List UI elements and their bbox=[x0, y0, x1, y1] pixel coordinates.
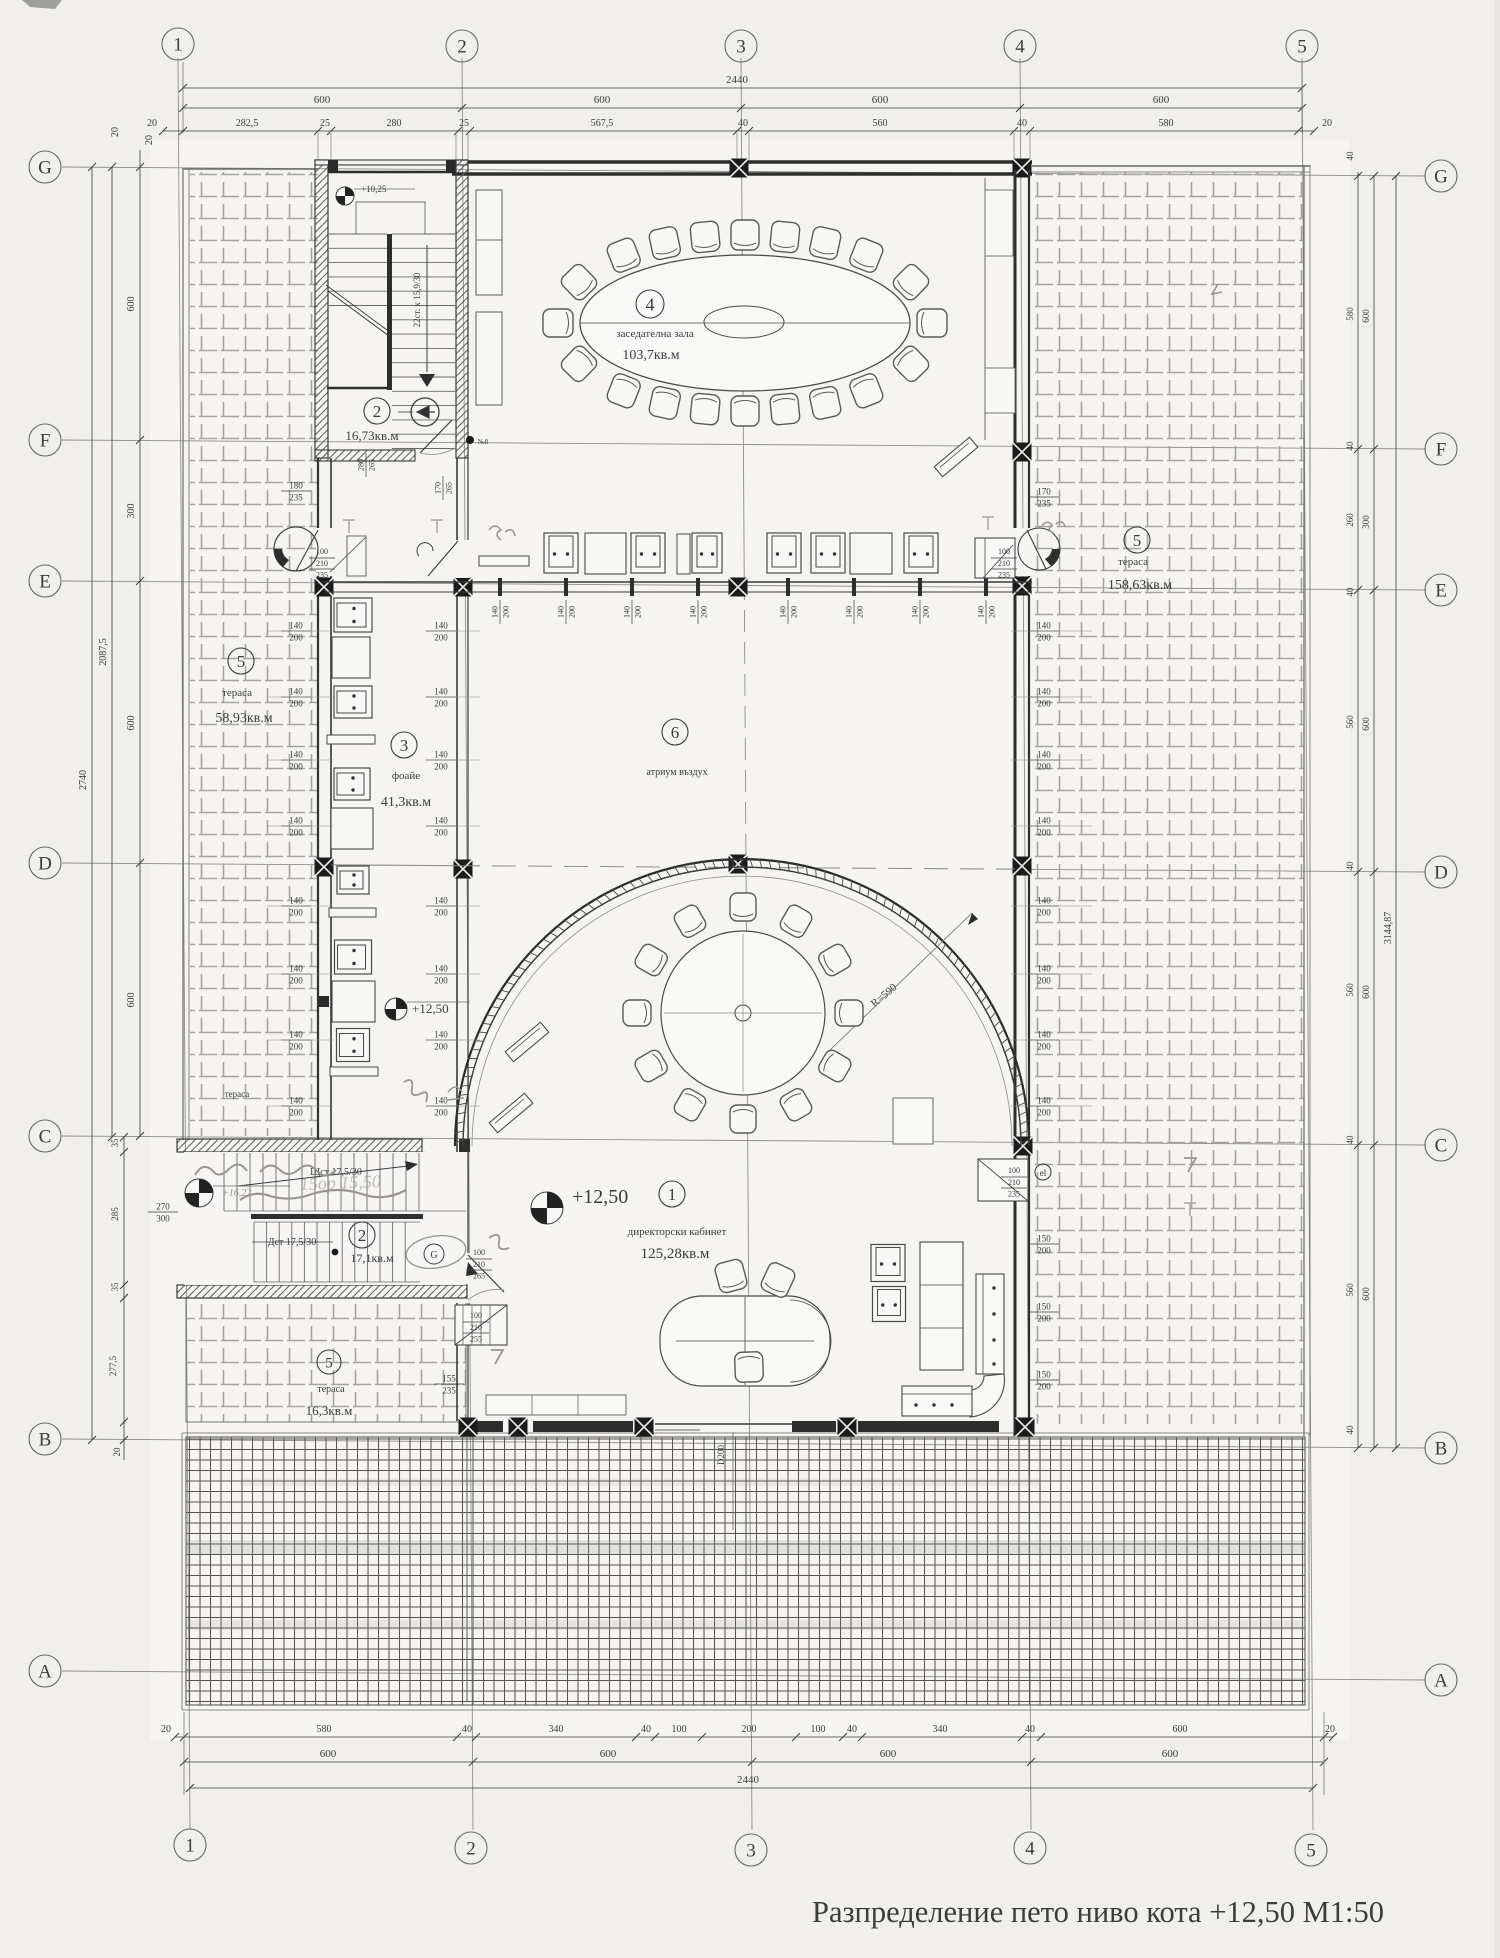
svg-text:D: D bbox=[1434, 863, 1448, 884]
svg-text:el: el bbox=[1040, 1168, 1047, 1178]
svg-text:200: 200 bbox=[434, 1042, 448, 1052]
svg-text:200: 200 bbox=[1037, 1382, 1051, 1392]
svg-text:600: 600 bbox=[872, 94, 889, 106]
svg-text:150: 150 bbox=[1037, 1302, 1051, 1312]
svg-text:140: 140 bbox=[1037, 816, 1051, 826]
svg-text:200: 200 bbox=[790, 606, 799, 618]
svg-text:280: 280 bbox=[387, 118, 402, 129]
svg-text:140: 140 bbox=[1037, 896, 1051, 906]
svg-text:200: 200 bbox=[289, 976, 303, 986]
svg-text:200: 200 bbox=[289, 633, 303, 643]
svg-text:158,63кв.м: 158,63кв.м bbox=[1108, 578, 1172, 593]
svg-text:560: 560 bbox=[1345, 715, 1355, 729]
svg-text:5: 5 bbox=[325, 1355, 333, 1371]
svg-text:140: 140 bbox=[434, 621, 448, 631]
svg-text:35: 35 bbox=[110, 1282, 120, 1292]
svg-text:100: 100 bbox=[470, 1311, 482, 1320]
svg-text:580: 580 bbox=[317, 1724, 332, 1735]
svg-text:1: 1 bbox=[185, 1836, 195, 1857]
svg-text:200: 200 bbox=[434, 633, 448, 643]
svg-text:40: 40 bbox=[1345, 587, 1355, 597]
svg-text:20: 20 bbox=[112, 1447, 122, 1457]
svg-text:40: 40 bbox=[847, 1724, 857, 1735]
svg-text:№8: №8 bbox=[478, 438, 489, 446]
svg-text:600: 600 bbox=[880, 1748, 897, 1760]
svg-text:140: 140 bbox=[289, 896, 303, 906]
svg-text:300: 300 bbox=[126, 504, 137, 519]
svg-text:E: E bbox=[1435, 581, 1447, 602]
svg-text:600: 600 bbox=[1173, 1724, 1188, 1735]
svg-text:282,5: 282,5 bbox=[236, 118, 259, 129]
svg-text:200: 200 bbox=[434, 908, 448, 918]
svg-text:G: G bbox=[38, 158, 52, 179]
svg-text:140: 140 bbox=[623, 606, 632, 618]
svg-text:140: 140 bbox=[434, 964, 448, 974]
svg-text:200: 200 bbox=[434, 699, 448, 709]
svg-text:5: 5 bbox=[1306, 1841, 1316, 1862]
svg-text:D200: D200 bbox=[716, 1445, 726, 1465]
svg-text:фоайе: фоайе bbox=[392, 770, 420, 782]
svg-text:140: 140 bbox=[434, 1030, 448, 1040]
svg-text:16,3кв.м: 16,3кв.м bbox=[306, 1403, 353, 1418]
svg-text:210: 210 bbox=[473, 1260, 485, 1269]
svg-text:235: 235 bbox=[998, 571, 1010, 580]
svg-text:D: D bbox=[38, 854, 52, 875]
svg-text:140: 140 bbox=[911, 606, 920, 618]
svg-text:2: 2 bbox=[457, 37, 467, 58]
svg-text:A: A bbox=[1434, 1671, 1448, 1692]
svg-text:40: 40 bbox=[1025, 1724, 1035, 1735]
svg-text:140: 140 bbox=[689, 606, 698, 618]
svg-text:200: 200 bbox=[1037, 1314, 1051, 1324]
svg-text:F: F bbox=[1436, 440, 1447, 461]
svg-text:+12,50: +12,50 bbox=[412, 1001, 449, 1016]
svg-text:40: 40 bbox=[1017, 118, 1027, 129]
svg-text:35: 35 bbox=[110, 1138, 120, 1148]
svg-text:277,5: 277,5 bbox=[108, 1355, 118, 1376]
svg-text:200: 200 bbox=[634, 606, 643, 618]
svg-text:5: 5 bbox=[237, 652, 246, 671]
svg-text:600: 600 bbox=[600, 1748, 617, 1760]
svg-text:16,73кв.м: 16,73кв.м bbox=[345, 428, 398, 443]
svg-text:600: 600 bbox=[594, 94, 611, 106]
svg-text:100: 100 bbox=[672, 1724, 687, 1735]
svg-text:600: 600 bbox=[1361, 309, 1371, 323]
svg-text:17,1кв.м: 17,1кв.м bbox=[350, 1251, 393, 1265]
svg-text:150: 150 bbox=[1037, 1234, 1051, 1244]
svg-text:40: 40 bbox=[1345, 441, 1355, 451]
svg-text:600: 600 bbox=[126, 993, 137, 1008]
svg-text:200: 200 bbox=[289, 908, 303, 918]
svg-text:600: 600 bbox=[1361, 985, 1371, 999]
svg-text:2087,5: 2087,5 bbox=[98, 638, 109, 666]
svg-text:140: 140 bbox=[1037, 750, 1051, 760]
svg-text:200: 200 bbox=[1037, 1246, 1051, 1256]
svg-text:200: 200 bbox=[1037, 762, 1051, 772]
svg-text:200: 200 bbox=[289, 828, 303, 838]
svg-text:5: 5 bbox=[1133, 531, 1142, 550]
svg-text:255: 255 bbox=[470, 1335, 482, 1344]
svg-text:260: 260 bbox=[1345, 513, 1355, 527]
svg-text:140: 140 bbox=[779, 606, 788, 618]
svg-text:100: 100 bbox=[316, 547, 328, 556]
svg-text:200: 200 bbox=[1037, 633, 1051, 643]
svg-text:200: 200 bbox=[856, 606, 865, 618]
svg-text:210: 210 bbox=[1008, 1178, 1020, 1187]
svg-text:140: 140 bbox=[1037, 687, 1051, 697]
svg-text:20: 20 bbox=[1325, 1724, 1335, 1735]
svg-text:E: E bbox=[39, 572, 51, 593]
svg-text:265: 265 bbox=[445, 482, 454, 494]
svg-text:C: C bbox=[1435, 1136, 1448, 1157]
svg-text:567,5: 567,5 bbox=[591, 118, 614, 129]
svg-text:140: 140 bbox=[289, 964, 303, 974]
svg-text:285: 285 bbox=[110, 1207, 120, 1221]
svg-text:580: 580 bbox=[1345, 307, 1355, 321]
svg-text:170: 170 bbox=[1037, 487, 1051, 497]
svg-text:2: 2 bbox=[373, 402, 382, 421]
svg-text:200: 200 bbox=[289, 1108, 303, 1118]
svg-text:тераса: тераса bbox=[222, 687, 252, 699]
svg-text:200: 200 bbox=[1037, 976, 1051, 986]
svg-text:3: 3 bbox=[746, 1841, 756, 1862]
svg-text:тераса: тераса bbox=[317, 1384, 345, 1395]
svg-text:3144,87: 3144,87 bbox=[1383, 912, 1394, 945]
svg-text:58,93кв.м: 58,93кв.м bbox=[215, 711, 272, 726]
svg-text:580: 580 bbox=[1159, 118, 1174, 129]
svg-text:40: 40 bbox=[738, 118, 748, 129]
svg-text:235: 235 bbox=[1008, 1190, 1020, 1199]
svg-text:235: 235 bbox=[1037, 499, 1051, 509]
svg-text:200: 200 bbox=[289, 1042, 303, 1052]
svg-text:заседателна зала: заседателна зала bbox=[616, 328, 694, 340]
svg-text:25: 25 bbox=[459, 118, 469, 129]
svg-text:140: 140 bbox=[434, 896, 448, 906]
svg-text:140: 140 bbox=[557, 606, 566, 618]
svg-text:210: 210 bbox=[316, 559, 328, 568]
svg-text:40: 40 bbox=[1345, 151, 1355, 161]
svg-text:140: 140 bbox=[1037, 1030, 1051, 1040]
svg-text:155: 155 bbox=[442, 1374, 456, 1384]
svg-text:40: 40 bbox=[641, 1724, 651, 1735]
svg-text:5: 5 bbox=[1297, 37, 1307, 58]
svg-text:140: 140 bbox=[289, 621, 303, 631]
svg-text:140: 140 bbox=[434, 1096, 448, 1106]
svg-text:600: 600 bbox=[126, 716, 137, 731]
svg-text:210: 210 bbox=[470, 1323, 482, 1332]
svg-text:140: 140 bbox=[434, 750, 448, 760]
svg-text:300: 300 bbox=[1361, 515, 1371, 529]
svg-text:210: 210 bbox=[998, 559, 1010, 568]
svg-text:340: 340 bbox=[549, 1724, 564, 1735]
svg-text:600: 600 bbox=[314, 94, 331, 106]
svg-text:25: 25 bbox=[320, 118, 330, 129]
svg-text:3: 3 bbox=[400, 736, 409, 755]
svg-text:265: 265 bbox=[368, 459, 377, 471]
svg-text:140: 140 bbox=[434, 816, 448, 826]
svg-text:270: 270 bbox=[156, 1202, 170, 1212]
svg-text:тераса: тераса bbox=[1118, 556, 1148, 568]
svg-text:200: 200 bbox=[700, 606, 709, 618]
svg-text:15ор 15,50: 15ор 15,50 bbox=[299, 1171, 381, 1194]
svg-text:20: 20 bbox=[110, 127, 121, 137]
svg-text:140: 140 bbox=[1037, 1096, 1051, 1106]
svg-text:140: 140 bbox=[977, 606, 986, 618]
svg-text:+12,50: +12,50 bbox=[572, 1186, 628, 1208]
svg-text:+16,22: +16,22 bbox=[222, 1188, 251, 1199]
svg-text:125,28кв.м: 125,28кв.м bbox=[641, 1246, 710, 1262]
svg-text:180: 180 bbox=[289, 481, 303, 491]
svg-text:300: 300 bbox=[156, 1214, 170, 1224]
svg-text:4: 4 bbox=[646, 294, 655, 314]
svg-text:41,3кв.м: 41,3кв.м bbox=[381, 795, 431, 810]
svg-text:235: 235 bbox=[316, 571, 328, 580]
svg-text:103,7кв.м: 103,7кв.м bbox=[622, 348, 679, 363]
svg-text:тераса: тераса bbox=[225, 1089, 250, 1099]
svg-text:600: 600 bbox=[320, 1748, 337, 1760]
svg-text:20: 20 bbox=[144, 135, 155, 145]
svg-text:200: 200 bbox=[434, 976, 448, 986]
svg-text:140: 140 bbox=[289, 1096, 303, 1106]
svg-text:200: 200 bbox=[289, 699, 303, 709]
svg-text:40: 40 bbox=[462, 1724, 472, 1735]
svg-text:200: 200 bbox=[1037, 1042, 1051, 1052]
svg-text:A: A bbox=[38, 1662, 52, 1683]
svg-text:600: 600 bbox=[1361, 1287, 1371, 1301]
svg-text:560: 560 bbox=[1345, 983, 1355, 997]
svg-text:140: 140 bbox=[1037, 621, 1051, 631]
svg-text:600: 600 bbox=[1153, 94, 1170, 106]
svg-text:200: 200 bbox=[1037, 699, 1051, 709]
svg-text:C: C bbox=[39, 1127, 52, 1148]
svg-text:20: 20 bbox=[147, 118, 157, 129]
svg-text:200: 200 bbox=[434, 762, 448, 772]
svg-text:4: 4 bbox=[1025, 1839, 1035, 1860]
svg-text:200: 200 bbox=[1037, 828, 1051, 838]
svg-text:600: 600 bbox=[1162, 1748, 1179, 1760]
svg-text:200: 200 bbox=[434, 1108, 448, 1118]
svg-text:200: 200 bbox=[742, 1724, 757, 1735]
svg-text:200: 200 bbox=[289, 762, 303, 772]
svg-text:200: 200 bbox=[988, 606, 997, 618]
svg-text:атриум въздух: атриум въздух bbox=[646, 767, 707, 778]
svg-text:F: F bbox=[40, 431, 51, 452]
svg-text:2: 2 bbox=[358, 1226, 367, 1245]
svg-text:200: 200 bbox=[502, 606, 511, 618]
svg-text:40: 40 bbox=[1345, 1425, 1355, 1435]
svg-text:6: 6 bbox=[671, 723, 680, 742]
svg-text:Разпределение пето ниво кота +: Разпределение пето ниво кота +12,50 М1:5… bbox=[812, 1895, 1384, 1929]
svg-text:280: 280 bbox=[357, 459, 366, 471]
svg-text:200: 200 bbox=[434, 828, 448, 838]
svg-text:235: 235 bbox=[442, 1386, 456, 1396]
svg-text:100: 100 bbox=[1008, 1166, 1020, 1175]
svg-text:140: 140 bbox=[289, 1030, 303, 1040]
svg-text:1: 1 bbox=[668, 1185, 677, 1204]
svg-text:200: 200 bbox=[1037, 908, 1051, 918]
svg-text:B: B bbox=[1435, 1439, 1448, 1460]
svg-text:100: 100 bbox=[473, 1248, 485, 1257]
svg-text:100: 100 bbox=[998, 547, 1010, 556]
svg-text:3: 3 bbox=[736, 37, 746, 58]
svg-text:2440: 2440 bbox=[737, 1774, 760, 1786]
svg-text:100: 100 bbox=[811, 1724, 826, 1735]
svg-text:170: 170 bbox=[434, 482, 443, 494]
svg-text:20: 20 bbox=[161, 1724, 171, 1735]
svg-text:235: 235 bbox=[289, 493, 303, 503]
svg-text:40: 40 bbox=[1345, 1135, 1355, 1145]
svg-text:200: 200 bbox=[1037, 1108, 1051, 1118]
svg-text:600: 600 bbox=[1361, 717, 1371, 731]
svg-text:G: G bbox=[1434, 167, 1448, 188]
svg-text:140: 140 bbox=[845, 606, 854, 618]
svg-text:200: 200 bbox=[568, 606, 577, 618]
svg-text:140: 140 bbox=[289, 816, 303, 826]
svg-text:2740: 2740 bbox=[78, 770, 89, 790]
svg-text:140: 140 bbox=[1037, 964, 1051, 974]
svg-text:G: G bbox=[430, 1250, 437, 1261]
svg-text:4: 4 bbox=[1015, 37, 1025, 58]
svg-text:140: 140 bbox=[491, 606, 500, 618]
svg-text:2440: 2440 bbox=[726, 74, 749, 86]
svg-text:560: 560 bbox=[1345, 1283, 1355, 1297]
svg-text:265: 265 bbox=[473, 1272, 485, 1281]
svg-text:140: 140 bbox=[289, 687, 303, 697]
svg-text:директорски кабинет: директорски кабинет bbox=[628, 1226, 727, 1238]
svg-text:20: 20 bbox=[1322, 118, 1332, 129]
svg-text:560: 560 bbox=[873, 118, 888, 129]
svg-text:Дст 17,5/30: Дст 17,5/30 bbox=[268, 1237, 316, 1248]
svg-text:600: 600 bbox=[126, 297, 137, 312]
svg-text:200: 200 bbox=[922, 606, 931, 618]
svg-text:140: 140 bbox=[434, 687, 448, 697]
svg-text:340: 340 bbox=[933, 1724, 948, 1735]
svg-text:1: 1 bbox=[173, 35, 183, 56]
svg-text:B: B bbox=[39, 1430, 52, 1451]
svg-text:150: 150 bbox=[1037, 1370, 1051, 1380]
svg-text:22ст. х 15,9/30: 22ст. х 15,9/30 bbox=[412, 272, 422, 327]
svg-text:2: 2 bbox=[466, 1839, 476, 1860]
svg-text:40: 40 bbox=[1345, 861, 1355, 871]
svg-text:140: 140 bbox=[289, 750, 303, 760]
